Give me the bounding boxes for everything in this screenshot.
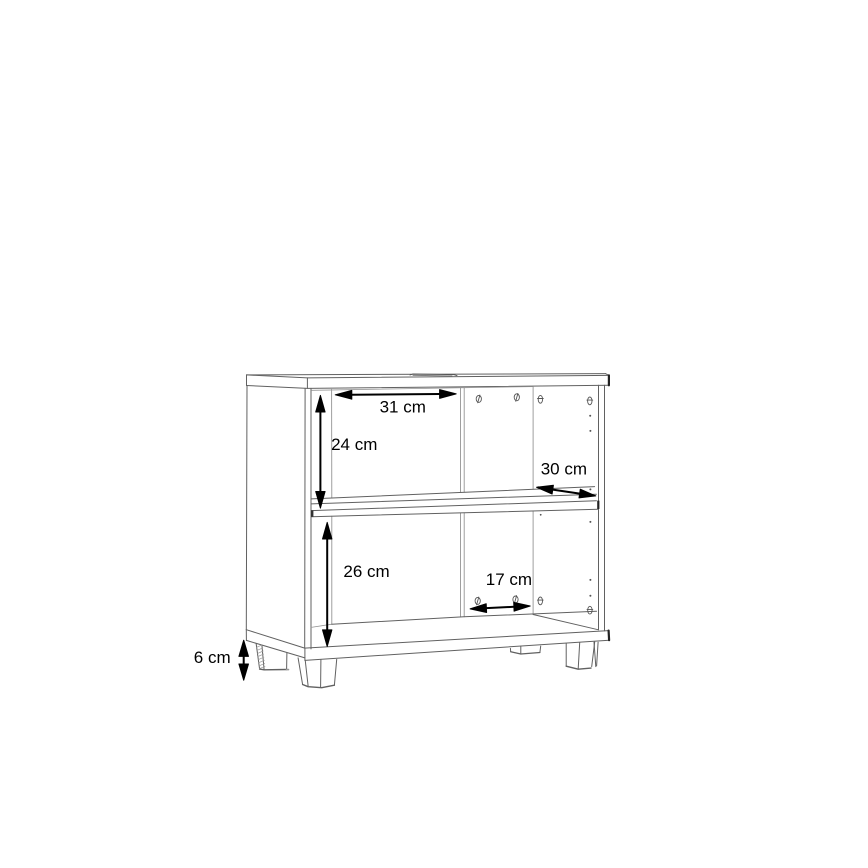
svg-text:30 cm: 30 cm: [541, 459, 587, 478]
svg-text:26 cm: 26 cm: [343, 562, 389, 581]
svg-text:6 cm: 6 cm: [194, 648, 231, 667]
svg-text:31 cm: 31 cm: [380, 398, 426, 417]
svg-text:24 cm: 24 cm: [331, 435, 377, 454]
svg-text:17 cm: 17 cm: [486, 570, 532, 589]
